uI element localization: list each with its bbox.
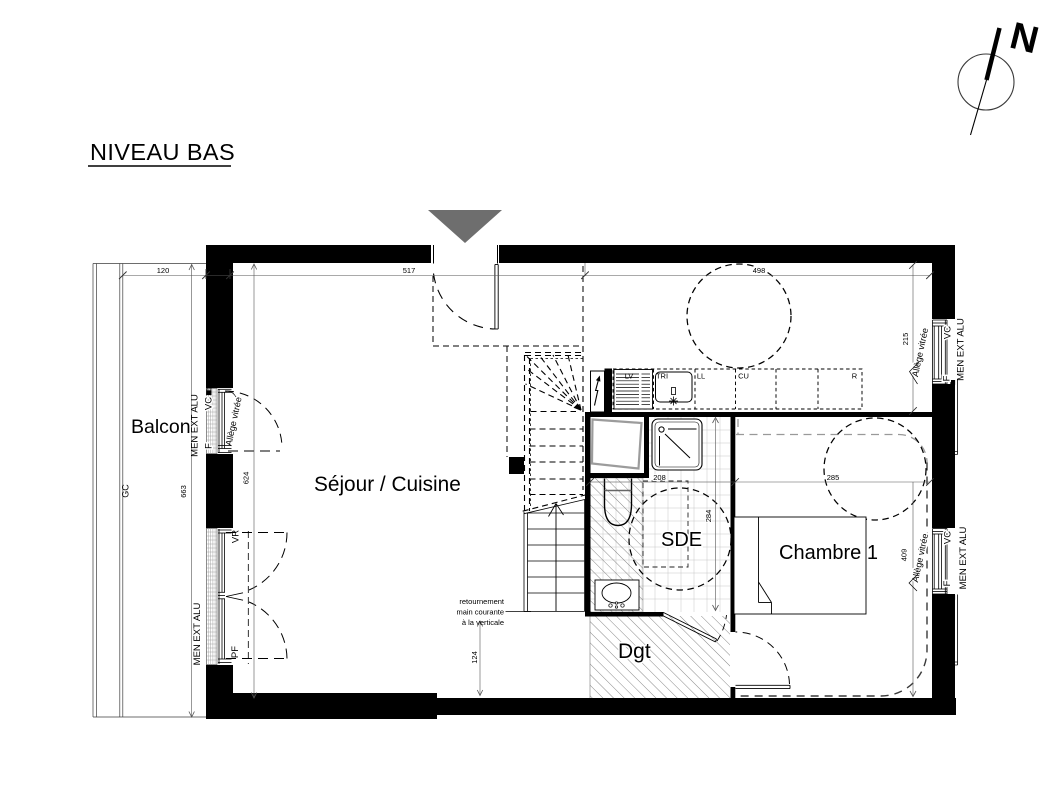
svg-text:663: 663	[179, 485, 188, 498]
svg-text:MEN EXT ALU: MEN EXT ALU	[958, 527, 969, 590]
svg-text:208: 208	[653, 473, 666, 482]
svg-text:Séjour / Cuisine: Séjour / Cuisine	[314, 473, 461, 496]
svg-text:SDE: SDE	[661, 529, 702, 551]
svg-text:Dgt: Dgt	[618, 640, 651, 663]
svg-text:624: 624	[242, 472, 251, 485]
svg-text:PF: PF	[230, 646, 241, 658]
svg-text:F: F	[942, 580, 953, 586]
svg-text:285: 285	[827, 473, 840, 482]
svg-text:à la verticale: à la verticale	[462, 618, 504, 627]
svg-text:284: 284	[704, 510, 713, 523]
svg-text:Chambre 1: Chambre 1	[779, 542, 878, 564]
svg-text:MEN EXT ALU: MEN EXT ALU	[956, 318, 967, 381]
svg-text:MEN EXT ALU: MEN EXT ALU	[192, 603, 203, 666]
svg-text:120: 120	[157, 266, 170, 275]
svg-text:F: F	[942, 375, 953, 381]
svg-text:409: 409	[900, 549, 909, 562]
svg-text:124: 124	[470, 651, 479, 664]
svg-text:498: 498	[753, 266, 766, 275]
svg-text:Balcon: Balcon	[131, 416, 191, 438]
svg-text:F: F	[204, 443, 215, 449]
svg-text:215: 215	[901, 333, 910, 346]
svg-text:main courante: main courante	[456, 608, 504, 617]
svg-text:TRI: TRI	[656, 372, 668, 381]
svg-text:R: R	[852, 372, 858, 381]
svg-text:CU: CU	[738, 372, 749, 381]
svg-text:VC: VC	[943, 531, 954, 544]
svg-text:LL: LL	[697, 372, 705, 381]
svg-text:VC: VC	[204, 397, 215, 410]
svg-text:VR: VR	[231, 530, 242, 543]
svg-text:MEN EXT ALU: MEN EXT ALU	[190, 394, 201, 457]
svg-text:retournement: retournement	[459, 597, 505, 606]
svg-text:517: 517	[403, 266, 416, 275]
svg-text:NIVEAU BAS: NIVEAU BAS	[90, 139, 235, 165]
svg-text:VC: VC	[943, 326, 954, 339]
svg-text:LV: LV	[625, 372, 634, 381]
svg-text:GC: GC	[121, 484, 131, 498]
